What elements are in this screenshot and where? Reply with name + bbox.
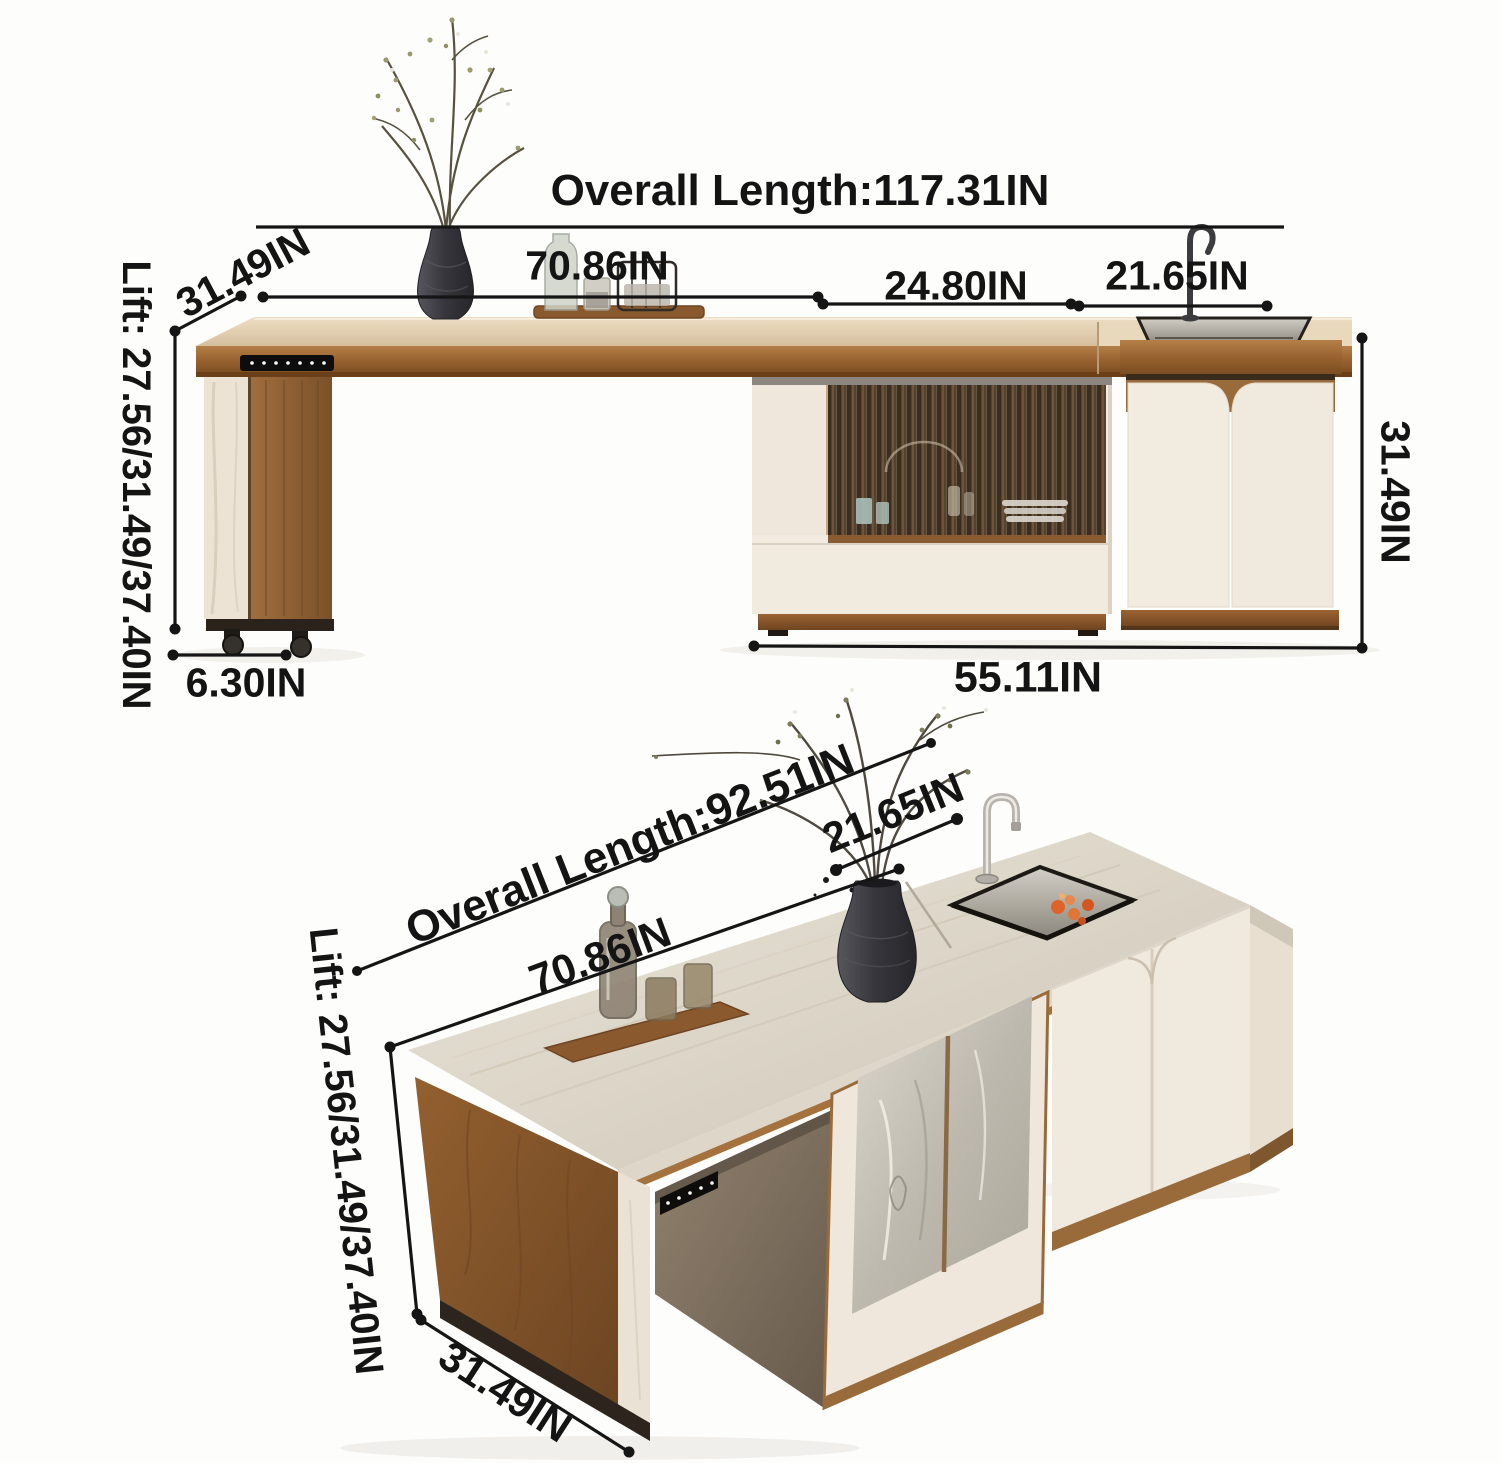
dim-label-leg-depth-top: 6.30IN (186, 663, 307, 704)
product-dimension-diagram: Overall Length:117.31IN 31.49IN Lift: 27… (0, 0, 1500, 1463)
dim-line-lift-bottom (390, 1047, 417, 1314)
dim-label-lift-range-top: Lift: 27.56/31.49/37.40IN (116, 260, 156, 709)
cabinet-end-panel (1250, 923, 1293, 1155)
dim-label-overall-length-top: Overall Length:117.31IN (551, 169, 1050, 213)
glass-cup (684, 964, 712, 1008)
sink-cabinet (1120, 340, 1342, 630)
bottom-figure-illustration (340, 688, 1293, 1460)
dim-label-sink-length-top: 21.65IN (1105, 256, 1249, 297)
caster-wheel (223, 635, 243, 655)
caster-wheel (291, 637, 311, 657)
decor-branches (372, 18, 524, 230)
cabinet-door (1128, 383, 1229, 607)
decor-branch-leaves (372, 17, 521, 150)
floor-shadow (340, 1436, 860, 1460)
dim-line-base-length-top (754, 646, 1362, 648)
top-figure-illustration (175, 17, 1380, 663)
furniture-illustration (0, 0, 1500, 1463)
cabinet-door (1232, 383, 1333, 607)
dim-label-cabinet-length-top: 24.80IN (884, 266, 1028, 307)
glass-cup (646, 978, 676, 1020)
table-leg (204, 377, 334, 657)
dim-label-table-length-top: 70.86IN (525, 246, 669, 287)
decor-vase (418, 228, 474, 319)
lift-keypad (240, 355, 334, 371)
dim-label-height-top: 31.49IN (1375, 420, 1416, 564)
dish-cabinet (752, 377, 1112, 636)
dim-label-base-length-top: 55.11IN (954, 657, 1102, 700)
